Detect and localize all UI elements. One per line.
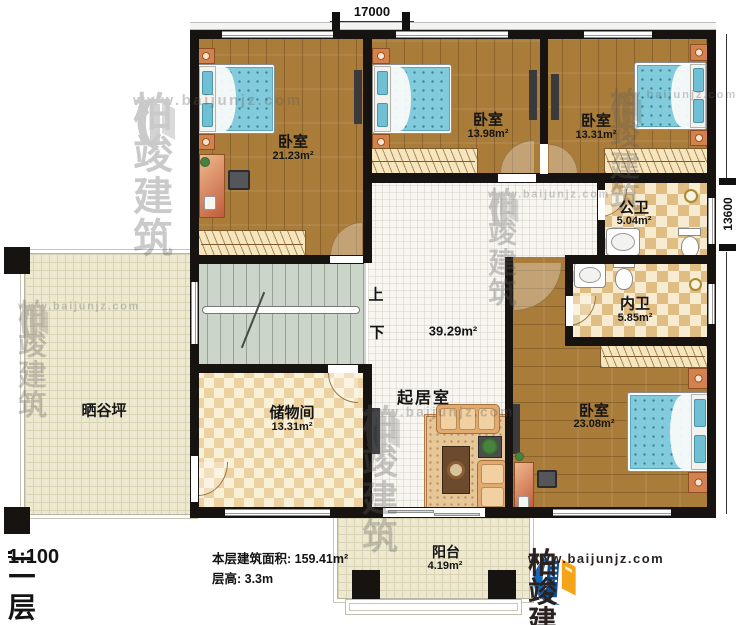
wardrobe	[368, 148, 478, 174]
label-stairs-up: 上	[368, 284, 383, 305]
label-public-bathroom-area: 5.04m²	[617, 215, 652, 227]
tv	[354, 70, 362, 124]
balcony-steps	[345, 599, 522, 615]
label-bedroom-top-mid-area: 13.98m²	[468, 128, 509, 140]
building-area-text: 本层建筑面积: 159.41m²	[212, 549, 348, 569]
computer-monitor	[537, 470, 557, 488]
nightstand	[690, 130, 708, 146]
pillow	[202, 71, 213, 95]
plan-info: 本层建筑面积: 159.41m² 层高: 3.3m	[212, 549, 348, 589]
plant	[200, 157, 210, 167]
brand-url: www.baijunjz.com	[528, 551, 664, 566]
wall-segment	[505, 257, 513, 508]
plan-scale: 1:100	[8, 546, 59, 569]
column	[4, 507, 30, 534]
sliding-door-leaf	[434, 513, 480, 516]
sofa-cushion	[440, 408, 457, 430]
toilet-tank	[678, 228, 701, 236]
label-balcony: 阳台	[432, 542, 460, 562]
room-drying-yard	[24, 253, 194, 515]
door-opening	[498, 174, 536, 182]
wall-segment	[363, 30, 372, 263]
ceiling-fixture	[689, 278, 702, 291]
window	[396, 31, 508, 38]
nightstand	[688, 368, 709, 389]
pillow	[377, 103, 388, 127]
wardrobe	[198, 230, 306, 257]
floor-height-text: 层高: 3.3m	[212, 569, 348, 589]
pillow	[694, 399, 706, 427]
window	[191, 282, 198, 344]
column	[488, 570, 516, 599]
label-bedroom-top-right-area: 13.31m²	[576, 129, 617, 141]
column	[352, 570, 380, 599]
toilet-bowl	[615, 268, 633, 290]
label-drying-yard: 晒谷坪	[81, 400, 126, 421]
sofa-cushion	[459, 408, 476, 430]
dimension-tick	[402, 12, 410, 30]
door-opening	[566, 296, 573, 326]
bed	[634, 62, 707, 130]
label-storage: 储物间	[269, 402, 314, 423]
label-living-area: 39.29m²	[429, 324, 477, 339]
label-balcony-area: 4.19m²	[428, 560, 463, 572]
bed	[197, 64, 275, 134]
nightstand	[372, 48, 390, 64]
label-bedroom-top-mid: 卧室	[473, 109, 503, 130]
label-stairs-down: 下	[369, 322, 384, 343]
dimension-tick	[719, 244, 736, 251]
stairs-area	[194, 260, 366, 368]
wall-segment	[707, 30, 716, 518]
cup	[204, 196, 216, 210]
dimension-line-right	[726, 252, 727, 514]
label-ensuite-bathroom-area: 5.85m²	[618, 312, 653, 324]
nightstand	[197, 134, 215, 150]
sink-basin	[579, 267, 601, 283]
pillow	[377, 71, 388, 95]
label-storage-area: 13.31m²	[272, 421, 313, 433]
tv	[513, 404, 520, 454]
plant	[515, 452, 524, 461]
door-opening	[191, 456, 198, 502]
bed-blanket	[670, 395, 691, 469]
nightstand	[690, 44, 708, 61]
bed	[627, 392, 709, 472]
pillow	[693, 68, 704, 92]
label-bedroom-top-left: 卧室	[278, 131, 308, 152]
door-opening	[540, 144, 548, 174]
wall-segment	[565, 337, 716, 346]
room-living-ext	[508, 178, 602, 262]
window-sill-band	[190, 22, 716, 30]
dimension-line-right	[726, 34, 727, 180]
nightstand	[197, 48, 215, 64]
label-living: 起居室	[397, 384, 451, 408]
label-bedroom-bottom-right-area: 23.08m²	[574, 418, 615, 430]
wall-segment	[190, 30, 199, 518]
wall-segment	[536, 173, 716, 183]
dimension-tick	[332, 12, 340, 30]
sofa-cushion	[478, 408, 495, 430]
sliding-door-leaf	[388, 510, 434, 513]
nightstand	[688, 472, 709, 493]
plant	[481, 438, 498, 455]
wall-segment	[568, 255, 716, 264]
title-block: 二层平面图 1:100	[8, 546, 12, 554]
sofa-cushion	[481, 464, 504, 484]
label-bedroom-top-left-area: 21.23m²	[273, 150, 314, 162]
door-opening	[328, 365, 358, 373]
tv	[529, 70, 537, 120]
column	[4, 247, 30, 274]
tv	[372, 408, 380, 454]
stair-handrail	[202, 306, 360, 314]
dimension-tick	[719, 178, 736, 185]
pillow	[694, 435, 706, 463]
wall-segment	[363, 364, 372, 514]
sofa-cushion	[481, 487, 504, 507]
sink	[574, 262, 606, 288]
window	[553, 509, 671, 516]
sink	[606, 228, 640, 256]
window	[584, 31, 652, 38]
ceiling-fixture	[684, 189, 698, 203]
pillow	[693, 99, 704, 123]
label-bedroom-top-right: 卧室	[581, 110, 611, 131]
door-opening	[330, 256, 363, 263]
computer-monitor	[228, 170, 250, 190]
floor-plan-canvas: 17000 13600 卧室 21.23m² 卧室 13.98m² 卧室 13.…	[0, 0, 750, 625]
pillow	[202, 103, 213, 127]
window	[708, 284, 715, 324]
window	[222, 31, 333, 38]
wardrobe	[600, 344, 708, 368]
coffee-table	[442, 446, 470, 494]
wardrobe	[604, 148, 708, 174]
tv	[551, 74, 559, 120]
watermark-name: 柏竣建筑	[133, 92, 182, 260]
sink-basin	[611, 233, 635, 251]
window	[225, 509, 330, 516]
bed	[372, 64, 452, 134]
bed-blanket	[671, 65, 690, 127]
dimension-top-label: 17000	[342, 4, 402, 19]
dimension-right-label: 13600	[702, 188, 750, 240]
door-opening	[598, 190, 605, 220]
label-ensuite-bathroom: 内卫	[620, 293, 650, 314]
